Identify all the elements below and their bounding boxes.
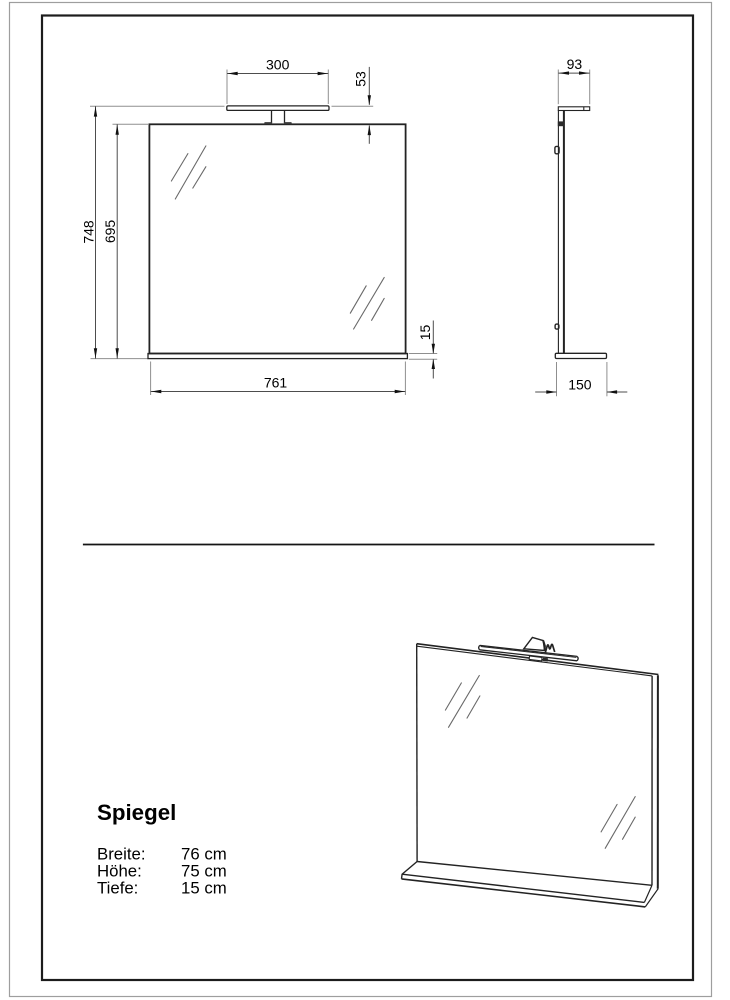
svg-text:748: 748: [81, 220, 97, 244]
svg-text:15: 15: [417, 325, 433, 341]
svg-text:Tiefe:: Tiefe:: [97, 879, 138, 898]
svg-text:53: 53: [353, 71, 369, 87]
svg-text:Spiegel: Spiegel: [97, 800, 176, 825]
svg-text:93: 93: [567, 56, 583, 72]
svg-text:695: 695: [102, 220, 118, 244]
svg-text:300: 300: [266, 56, 290, 72]
svg-text:76 cm: 76 cm: [181, 844, 227, 863]
svg-text:75 cm: 75 cm: [181, 862, 227, 881]
svg-text:Breite:: Breite:: [97, 844, 146, 863]
svg-text:Höhe:: Höhe:: [97, 862, 142, 881]
svg-text:15 cm: 15 cm: [181, 879, 227, 898]
svg-text:761: 761: [264, 375, 288, 391]
svg-text:150: 150: [568, 376, 592, 392]
